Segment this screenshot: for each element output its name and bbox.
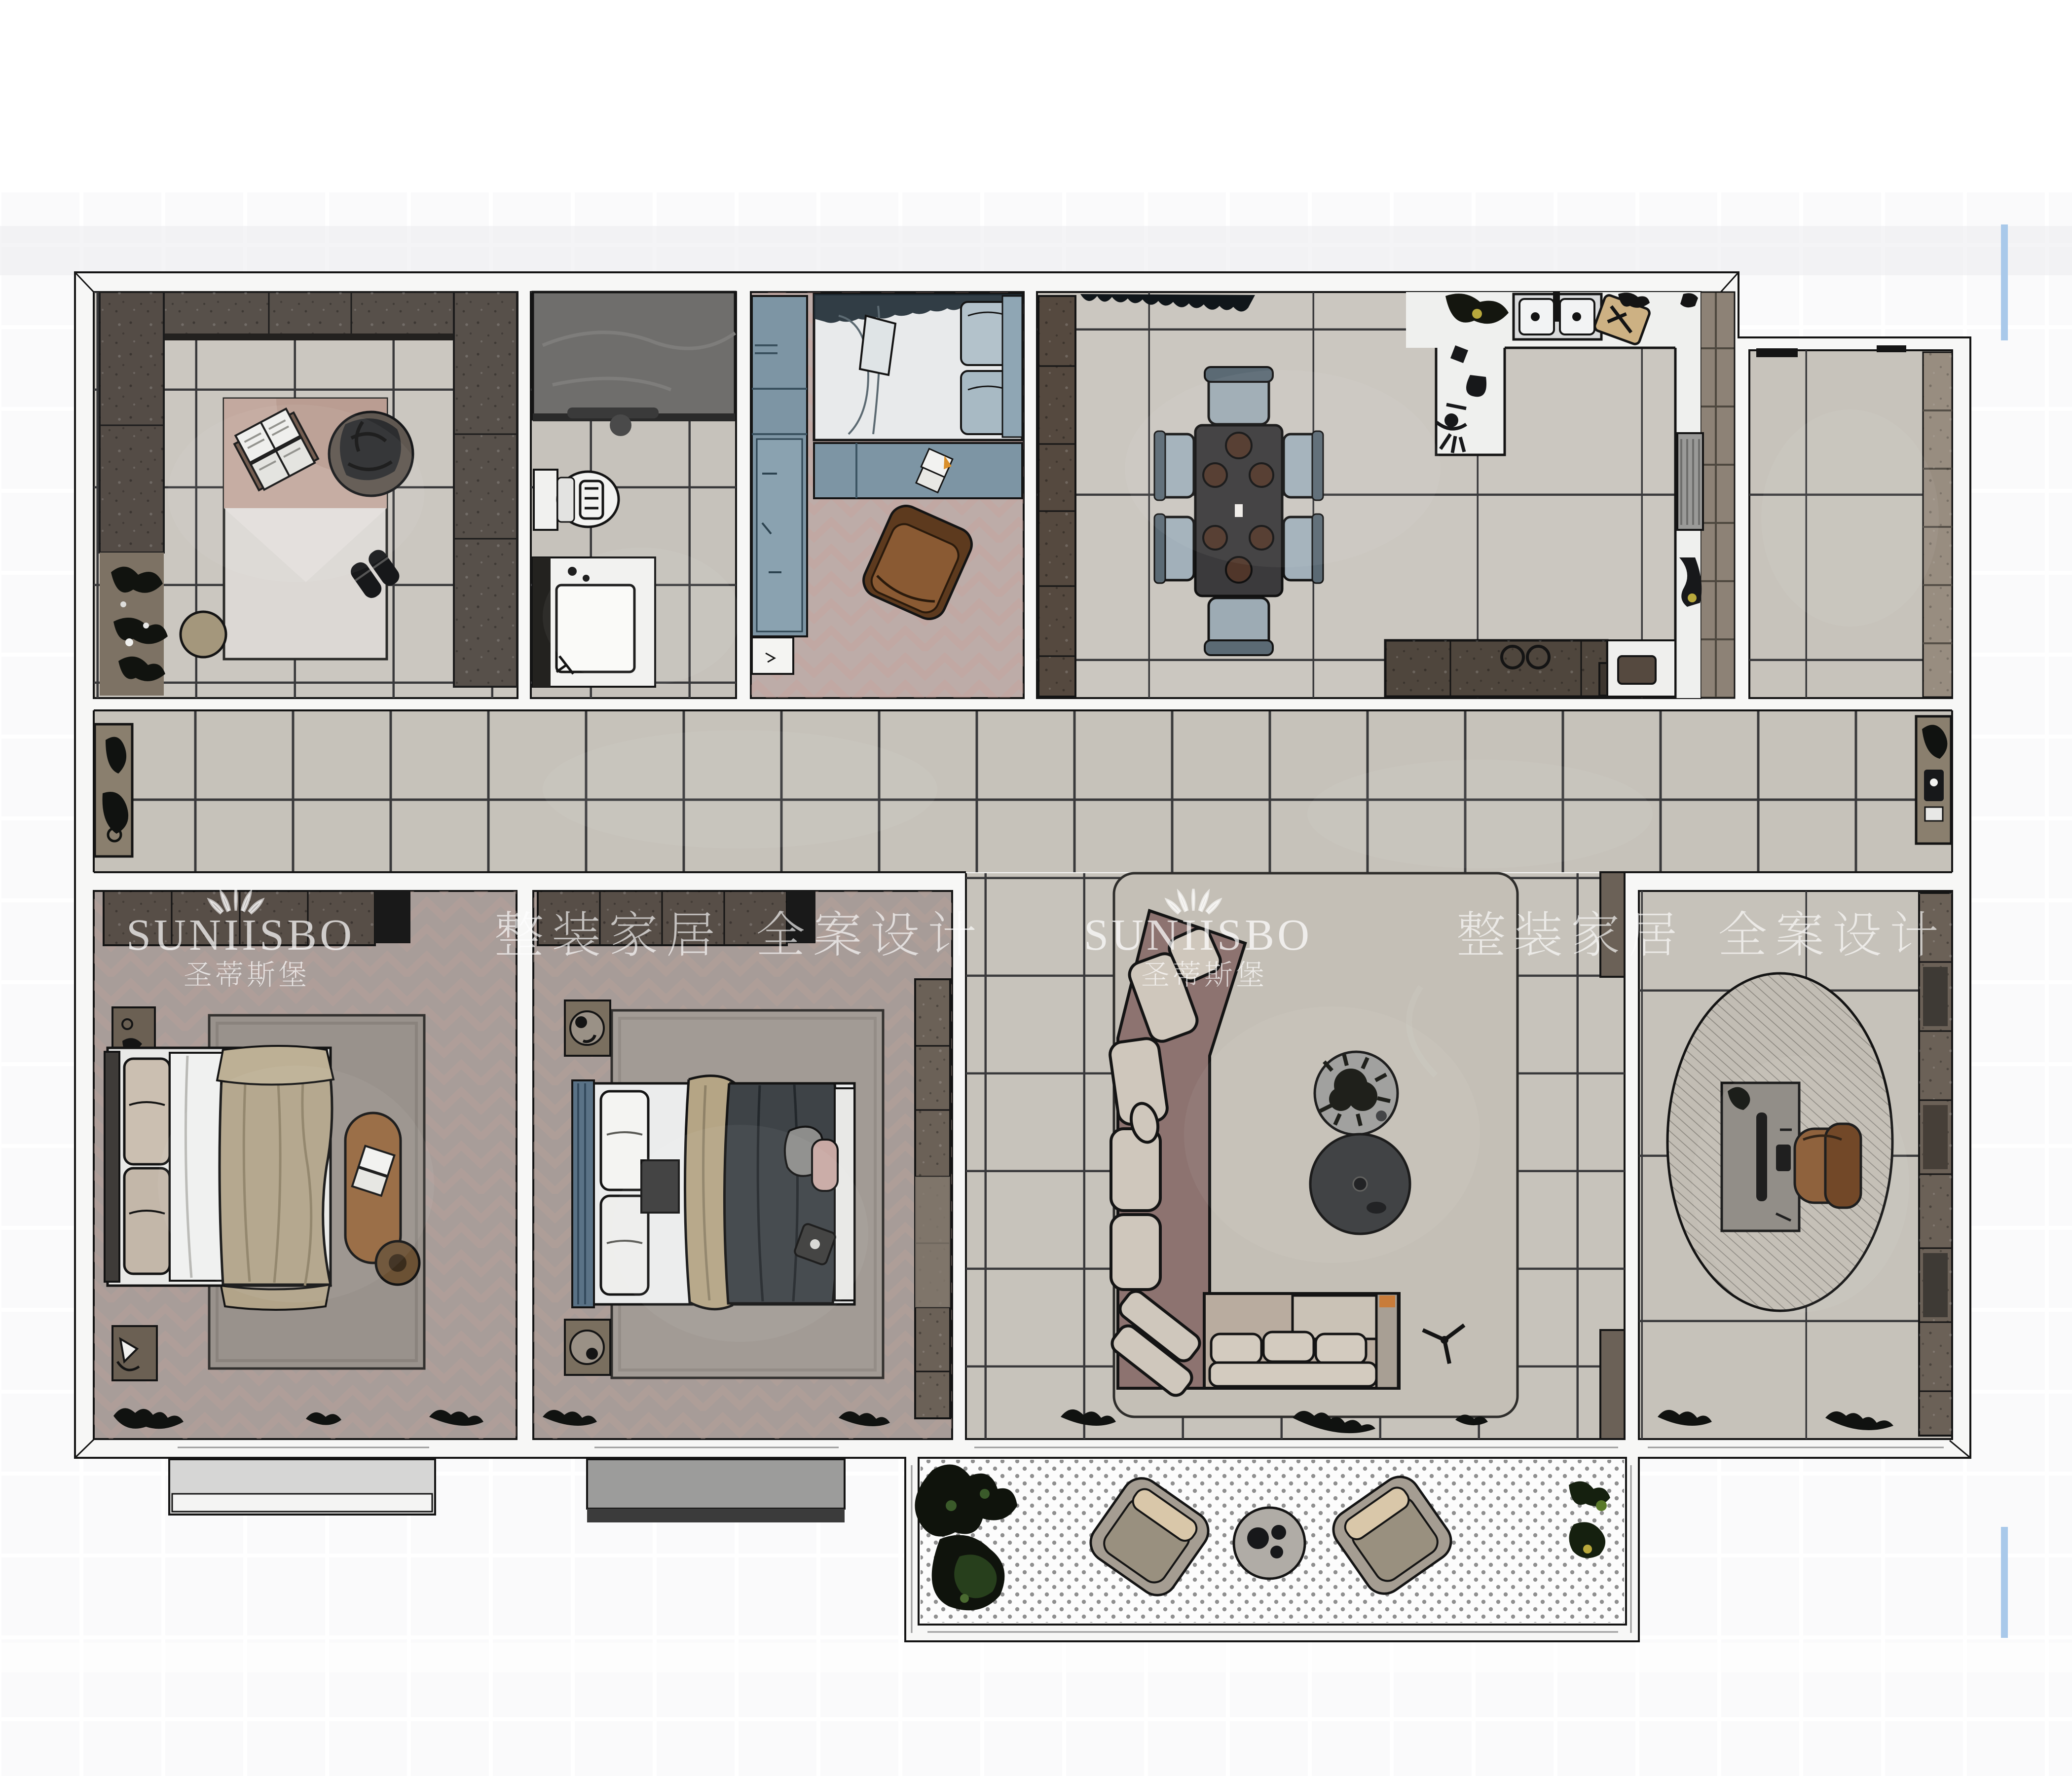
svg-text:SUNIISBO: SUNIISBO — [1084, 911, 1312, 960]
svg-text:SUNIISBO: SUNIISBO — [126, 911, 355, 960]
